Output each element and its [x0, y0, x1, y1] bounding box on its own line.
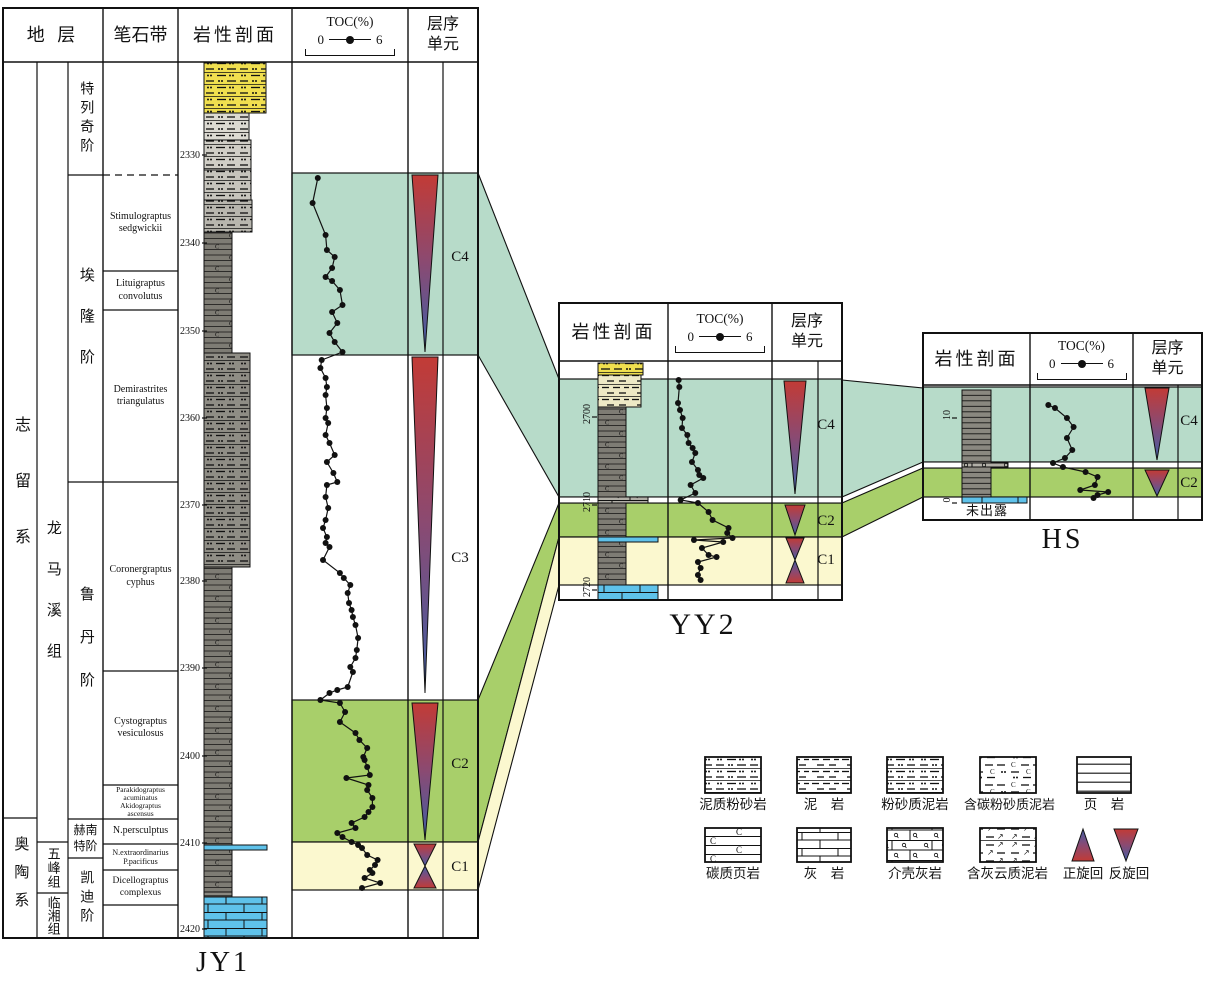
jy1-header-lithology: 岩性剖面	[178, 8, 292, 62]
toc-data-point	[675, 400, 681, 406]
toc-data-point	[726, 525, 732, 531]
toc-data-point	[680, 415, 686, 421]
jy1-biozone-sedgwickii: Stimulograptus sedgwickii	[103, 175, 178, 271]
legend-label-reverse-cycle: 反旋回	[1099, 866, 1159, 883]
jy1-header-sequence: 层序单元	[408, 8, 478, 62]
legend-label-shell-limestone: 介壳灰岩	[870, 866, 960, 883]
toc-data-point	[353, 730, 359, 736]
toc-data-point	[337, 570, 343, 576]
yy2-header-toc: TOC(%) 0 6	[668, 303, 772, 361]
jy1-lithology-column	[204, 63, 267, 938]
toc-data-point	[366, 809, 372, 815]
hs-toc-axis: 0 6	[1049, 356, 1114, 372]
toc-data-point	[679, 425, 685, 431]
toc-data-point	[1069, 447, 1075, 453]
toc-axis-dot-icon	[1078, 360, 1086, 368]
toc-data-point	[700, 475, 706, 481]
hs-header-sequence: 层序单元	[1133, 333, 1202, 385]
normal-cycle-triangle	[1072, 829, 1094, 861]
toc-data-point	[324, 247, 330, 253]
lith-segment-g15	[204, 140, 251, 170]
toc-data-point	[334, 687, 340, 693]
legend-label-carbonaceous-shale: 碳质页岩	[688, 866, 778, 883]
legend-swatch-l_dotdash	[705, 757, 761, 793]
lith-segment-dk	[598, 503, 626, 537]
toc-axis-bracket	[1037, 373, 1127, 380]
toc-data-point	[347, 582, 353, 588]
hs-header-lithology: 岩性剖面	[923, 333, 1030, 385]
toc-data-point	[678, 497, 684, 503]
toc-data-point	[1060, 464, 1066, 470]
jy1-toc-max: 6	[376, 32, 383, 48]
toc-data-point	[362, 757, 368, 763]
toc-data-point	[364, 745, 370, 751]
toc-data-point	[324, 534, 330, 540]
toc-data-point	[369, 795, 375, 801]
toc-data-point	[332, 339, 338, 345]
lith-segment-dkdash	[204, 353, 250, 567]
jy1-biozone-persculptus: N.persculptus	[103, 819, 178, 844]
toc-data-point	[340, 349, 346, 355]
toc-data-point	[320, 525, 326, 531]
toc-data-point	[706, 552, 712, 558]
toc-data-point	[329, 265, 335, 271]
yy2-seq-label-c1: C1	[812, 551, 840, 569]
toc-data-point	[695, 467, 701, 473]
lith-segment-dk	[598, 407, 626, 497]
depth-tick-label: 2700	[582, 404, 593, 424]
lith-segment-blue	[204, 845, 267, 850]
yy2-well-label: YY2	[648, 606, 758, 644]
jy1-seq-label-c3: C3	[445, 549, 475, 567]
toc-data-point	[695, 500, 701, 506]
toc-data-point	[327, 690, 333, 696]
toc-data-point	[1083, 469, 1089, 475]
legend-label-mudstone: 泥 岩	[789, 797, 859, 814]
jy1-sequence-bands	[292, 173, 478, 890]
toc-data-point	[319, 357, 325, 363]
jy1-biozone-extraordinarius-pacificus: N.extraordinarius P.pacificus	[103, 844, 178, 870]
yy2-toc-min: 0	[688, 329, 695, 345]
depth-tick-label: 2330	[180, 150, 200, 161]
toc-data-point	[334, 830, 340, 836]
legend-swatch-l_clines	[705, 828, 761, 862]
yy2-header-lithology: 岩性剖面	[559, 303, 668, 361]
toc-data-point	[334, 479, 340, 485]
toc-data-point	[327, 544, 333, 550]
lith-segment-shale	[962, 390, 991, 463]
legend-swatch-l_dashdot	[887, 757, 943, 793]
toc-data-point	[359, 845, 365, 851]
toc-data-point	[362, 875, 368, 881]
jy1-series-ordovician: 奥陶系	[3, 818, 37, 938]
yy2-header-sequence: 层序单元	[772, 303, 842, 361]
depth-tick-label: 2380	[180, 576, 200, 587]
legend-swatch-l_dash	[797, 757, 851, 793]
toc-data-point	[356, 737, 362, 743]
lith-segment-shale	[204, 892, 232, 897]
yy2-toc-max: 6	[746, 329, 753, 345]
toc-data-point	[367, 772, 373, 778]
toc-data-point	[1077, 487, 1083, 493]
toc-data-point	[324, 459, 330, 465]
toc-data-point	[323, 494, 329, 500]
toc-data-point	[369, 870, 375, 876]
toc-data-point	[355, 635, 361, 641]
toc-data-point	[1105, 489, 1111, 495]
hs-toc-max: 6	[1108, 356, 1115, 372]
lith-segment-lime	[204, 897, 267, 938]
lith-segment-dk	[204, 850, 232, 892]
toc-data-point	[695, 559, 701, 565]
toc-data-point	[377, 880, 383, 886]
depth-tick-label: 2710	[582, 492, 593, 512]
depth-tick-label: 2340	[180, 238, 200, 249]
lith-segment-g1	[204, 113, 249, 140]
toc-data-point	[1071, 424, 1077, 430]
toc-data-point	[1052, 405, 1058, 411]
depth-tick-label: 2350	[180, 326, 200, 337]
jy1-stage-rhuddanian: 鲁丹阶	[68, 482, 103, 819]
toc-data-point	[362, 814, 368, 820]
legend-swatch-l_cdash	[980, 757, 1036, 793]
toc-data-point	[714, 554, 720, 560]
toc-data-point	[323, 375, 329, 381]
lith-segment-g25	[204, 200, 252, 232]
toc-data-point	[1062, 455, 1068, 461]
toc-data-point	[323, 274, 329, 280]
hs-toc-title: TOC(%)	[1058, 338, 1105, 355]
legend-label-silty-mudstone: 粉砂质泥岩	[870, 797, 960, 814]
jy1-biozone-triangulatus: Demirastrites triangulatus	[103, 310, 178, 482]
toc-data-point	[676, 384, 682, 390]
legend-label-limestone: 灰 岩	[789, 866, 859, 883]
toc-data-point	[325, 505, 331, 511]
toc-data-point	[353, 825, 359, 831]
toc-data-point	[350, 669, 356, 675]
toc-data-point	[323, 432, 329, 438]
jy1-biozone-cyphus: Coronergraptus cyphus	[103, 482, 178, 671]
toc-data-point	[710, 517, 716, 523]
lith-segment-dk	[204, 567, 232, 845]
toc-data-point	[323, 517, 329, 523]
jy1-series-silurian: 志留系	[3, 62, 37, 818]
yy2-seq-label-c4: C4	[812, 416, 840, 434]
hs-seq-label-c4: C4	[1176, 412, 1202, 430]
hs-toc-min: 0	[1049, 356, 1056, 372]
toc-data-point	[324, 482, 330, 488]
toc-data-point	[1095, 474, 1101, 480]
lith-segment-yellow	[204, 63, 266, 113]
jy1-toc-min: 0	[318, 32, 325, 48]
jy1-stage-hirnantian: 赫南特阶	[68, 819, 103, 858]
toc-data-point	[730, 535, 736, 541]
toc-axis-dot-icon	[346, 36, 354, 44]
correlation-band-green	[478, 503, 559, 842]
toc-data-point	[364, 787, 370, 793]
legend-label-shale: 页 岩	[1069, 797, 1139, 814]
lith-segment-g2	[204, 170, 251, 200]
depth-tick-label: 2400	[180, 751, 200, 762]
yy2-seq-label-c2: C2	[812, 512, 840, 530]
lith-segment-lime	[598, 585, 658, 600]
toc-data-point	[366, 782, 372, 788]
jy1-header-biozone: 笔石带	[103, 8, 178, 62]
lith-segment-dk	[204, 232, 232, 353]
jy1-biozone-complexus: Dicellograptus complexus	[103, 870, 178, 905]
jy1-header-strata: 地 层	[3, 8, 103, 62]
reverse-cycle-triangle	[412, 357, 438, 693]
toc-data-point	[349, 820, 355, 826]
toc-data-point	[315, 175, 321, 181]
toc-data-point	[323, 392, 329, 398]
legend-label-dolomitic-mudstone: 含灰云质泥岩	[955, 866, 1060, 883]
toc-data-point	[720, 539, 726, 545]
toc-data-point	[327, 330, 333, 336]
toc-data-point	[337, 719, 343, 725]
toc-data-point	[698, 577, 704, 583]
toc-data-point	[353, 622, 359, 628]
depth-tick-label: 0	[942, 498, 953, 503]
toc-data-point	[329, 309, 335, 315]
toc-data-point	[337, 287, 343, 293]
toc-data-point	[688, 482, 694, 488]
toc-data-point	[324, 384, 330, 390]
toc-data-point	[327, 440, 333, 446]
toc-axis-line	[1061, 363, 1103, 364]
toc-data-point	[350, 614, 356, 620]
jy1-seq-label-c2: C2	[445, 755, 475, 773]
toc-data-point	[676, 377, 682, 383]
toc-data-point	[691, 537, 697, 543]
toc-data-point	[349, 607, 355, 613]
jy1-biozone-vesiculosus: Cystograptus vesiculosus	[103, 671, 178, 785]
hs-well-label: HS	[1015, 522, 1110, 556]
toc-data-point	[689, 459, 695, 465]
lith-segment-shale	[962, 467, 991, 497]
toc-data-point	[686, 440, 692, 446]
toc-axis-dot-icon	[716, 333, 724, 341]
toc-data-point	[320, 557, 326, 563]
toc-data-point	[346, 600, 352, 606]
legend-swatch-l_lines	[1077, 757, 1131, 793]
toc-data-point	[1064, 415, 1070, 421]
jy1-seq-label-c4: C4	[445, 248, 475, 266]
correlation-band-teal	[478, 173, 559, 497]
hs-header-toc: TOC(%) 0 6	[1030, 333, 1133, 385]
toc-axis-bracket	[675, 346, 765, 353]
toc-data-point	[364, 852, 370, 858]
toc-data-point	[372, 862, 378, 868]
toc-data-point	[332, 254, 338, 260]
toc-data-point	[341, 575, 347, 581]
toc-data-point	[323, 232, 329, 238]
toc-data-point	[724, 530, 730, 536]
jy1-biozone-acuminatus-ascensus: Parakidograptus acuminatus Akidograptus …	[103, 785, 178, 819]
toc-data-point	[317, 697, 323, 703]
toc-axis-line	[329, 39, 371, 40]
depth-tick-label: 2720	[582, 577, 593, 597]
hs-seq-label-c2: C2	[1176, 474, 1202, 492]
toc-data-point	[1050, 460, 1056, 466]
toc-data-point	[699, 545, 705, 551]
legend-swatch-l_arrow	[980, 828, 1036, 862]
toc-data-point	[342, 709, 348, 715]
toc-data-point	[334, 320, 340, 326]
jy1-stage-aeronian: 埃隆阶	[68, 175, 103, 482]
depth-tick-label: 2390	[180, 663, 200, 674]
lith-segment-yellow	[598, 363, 643, 375]
legend-swatch-l_shellb	[887, 828, 943, 862]
toc-data-point	[354, 647, 360, 653]
jy1-seq-label-c1: C1	[445, 858, 475, 876]
toc-data-point	[310, 200, 316, 206]
jy1-header-toc: TOC(%) 0 6	[292, 8, 408, 62]
jy1-stage-katian: 凯迪阶	[68, 858, 103, 938]
toc-data-point	[345, 590, 351, 596]
toc-data-point	[340, 302, 346, 308]
toc-data-point	[364, 764, 370, 770]
reverse-cycle-triangle	[1114, 829, 1138, 861]
jy1-well-label: JY1	[168, 944, 278, 980]
toc-data-point	[337, 700, 343, 706]
toc-data-point	[1091, 495, 1097, 501]
toc-data-point	[684, 432, 690, 438]
lith-segment-pale	[598, 375, 641, 407]
yy2-toc-axis: 0 6	[688, 329, 753, 345]
toc-data-point	[343, 775, 349, 781]
toc-data-point	[698, 565, 704, 571]
toc-data-point	[359, 885, 365, 891]
hs-not-exposed-label: 未出露	[956, 503, 1018, 519]
toc-data-point	[317, 365, 323, 371]
toc-data-point	[1064, 435, 1070, 441]
toc-data-point	[325, 420, 331, 426]
jy1-biozone-convolutus: Lituigraptus convolutus	[103, 271, 178, 310]
toc-data-point	[340, 834, 346, 840]
toc-data-point	[1045, 402, 1051, 408]
toc-data-point	[677, 407, 683, 413]
toc-axis-bracket	[305, 49, 395, 56]
depth-tick-label: 2420	[180, 924, 200, 935]
depth-tick-label: 2360	[180, 413, 200, 424]
toc-data-point	[1092, 482, 1098, 488]
lith-segment-blue	[598, 537, 658, 542]
stratigraphic-correlation-diagram: CCCCCC↗↗↗↗↗23302340235023602370238023902…	[0, 0, 1205, 985]
toc-axis-line	[699, 336, 741, 337]
jy1-toc-title: TOC(%)	[327, 14, 374, 31]
toc-data-point	[329, 278, 335, 284]
yy2-toc-title: TOC(%)	[697, 311, 744, 328]
toc-data-point	[692, 450, 698, 456]
toc-data-point	[345, 684, 351, 690]
depth-tick-label: 10	[942, 410, 953, 420]
toc-data-point	[369, 804, 375, 810]
toc-data-point	[706, 509, 712, 515]
jy1-depth-ticks: 2330234023502360237023802390240024102420	[180, 150, 207, 935]
lith-segment-dk	[598, 542, 626, 585]
legend-label-carbonaceous-silty-mudstone: 含碳粉砂质泥岩	[952, 797, 1067, 814]
toc-data-point	[324, 405, 330, 411]
depth-tick-label: 2410	[180, 838, 200, 849]
toc-data-point	[353, 655, 359, 661]
jy1-formation-linxiang: 临湘组	[37, 893, 68, 938]
legend-label-argillaceous-siltstone: 泥质粉砂岩	[688, 797, 778, 814]
jy1-formation-wufeng: 五峰组	[37, 842, 68, 893]
lith-segment-shellb	[598, 497, 648, 503]
depth-tick-label: 2370	[180, 500, 200, 511]
diagram-graphics: CCCCCC↗↗↗↗↗23302340235023602370238023902…	[0, 0, 1205, 985]
lith-segment-shellb	[962, 463, 1008, 467]
toc-data-point	[330, 470, 336, 476]
jy1-stage-telychian: 特列奇阶	[68, 62, 103, 175]
toc-data-point	[332, 452, 338, 458]
jy1-formation-longmaxi: 龙马溪组	[37, 62, 68, 842]
toc-data-point	[692, 490, 698, 496]
legend-swatch-l_brick	[797, 828, 851, 862]
jy1-toc-axis: 0 6	[318, 32, 383, 48]
toc-data-point	[349, 839, 355, 845]
